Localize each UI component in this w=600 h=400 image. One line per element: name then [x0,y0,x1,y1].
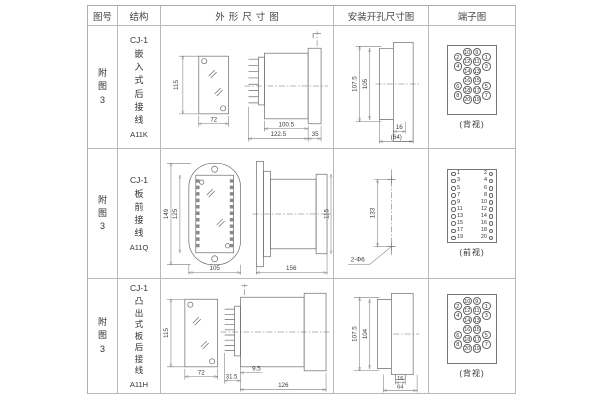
dim-v1: 107.5 [352,75,359,91]
pin-number-left: 15 [457,221,463,227]
terminal-pin: 15 [473,325,482,334]
install-svg-a11h: 107.5 104 16 64 [334,279,428,394]
pin-number-right: 12 [481,207,487,213]
terminal-box: 2468 101214161820 91113151719 1357 [447,294,497,364]
dim-front-width: 72 [210,116,217,123]
terminal-pin: 12 [463,57,472,66]
terminal-col-outer-right: 1357 [482,48,491,112]
hatch-marks [209,70,223,96]
terminal-row: 11 12 [451,207,493,213]
front-view: 115 72 [163,299,218,380]
side-view: 156 115 [252,161,332,274]
pin-number-right: 10 [481,200,487,206]
terminal-pin: 14 [463,316,472,325]
terminal-pin [451,221,456,226]
pin-number-left: 3 [457,178,460,184]
figure-no-a11k: 附图3 [88,26,118,149]
dim-v2: 105 [362,78,369,89]
pin-number-right: 18 [481,228,487,234]
terminal-diagram-a11q: 1 2 3 4 5 6 [429,149,516,279]
spec-sheet: 图号 结构 外形尺寸图 安装开孔尺寸图 端子图 附图3 CJ-1 嵌入式后接线 … [0,0,600,400]
terminal-pin: 10 [463,48,472,57]
dim-d1: 100.5 [278,121,294,128]
terminal-pin: 2 [454,53,463,62]
dim-h2: 64 [397,384,404,390]
terminal-row: 13 14 [451,214,493,220]
dim-v2: 104 [362,328,369,339]
view-caption: (前视) [459,247,484,258]
model-label: CJ-1 [130,175,148,185]
pin-number-left: 9 [457,200,460,206]
terminal-pin: 3 [482,311,491,320]
terminal-pin: 13 [473,67,482,76]
terminal-pin: 8 [454,340,463,349]
dim-h2: (64) [391,133,402,140]
install-svg-a11q: 133 2-Φ6 [334,149,428,279]
model-label: CJ-1 [130,283,148,293]
terminal-comb [248,59,258,103]
outline-svg-a11q: 149 125 105 156 [161,149,333,279]
terminal-pin [489,214,494,219]
figure-no-text: 附图3 [98,194,107,233]
cutout-left [378,299,392,368]
terminal-row: 9 10 [451,200,493,206]
hatch-marks [193,317,209,349]
terminal-pin [451,186,456,191]
terminal-pin [451,179,456,184]
terminal-box: 1 2 3 4 5 6 [447,169,497,243]
header-terminal-diagram: 端子图 [429,6,516,26]
terminal-col-inner-right: 91113151719 [473,297,482,361]
terminal-pin [489,193,494,198]
pin-number-left: 1 [457,171,460,177]
model-code-label: A11H [130,380,148,389]
structure-a11k: CJ-1 嵌入式后接线 A11K [118,26,161,149]
terminal-pin: 11 [473,306,482,315]
terminal-pin [451,172,456,177]
terminal-pin: 19 [473,344,482,353]
dimension-table: 图号 结构 外形尺寸图 安装开孔尺寸图 端子图 附图3 CJ-1 嵌入式后接线 … [87,5,516,394]
hatch-marks [207,189,225,227]
dim-front-inner: 125 [172,208,179,219]
pin-number-left: 11 [457,207,463,213]
terminal-pin [489,236,494,241]
pin-number-right: 4 [484,178,487,184]
header-outline-dims: 外形尺寸图 [161,6,334,26]
mount-type-label: 板前接线 [134,188,143,240]
terminal-diagram-a11k: 2468 101214161820 91113151719 1357 (背视) [429,26,516,149]
terminal-pin: 2 [454,302,463,311]
terminal-pin: 17 [473,335,482,344]
outline-drawing-a11h: 115 72 31.5 [161,279,334,394]
terminal-pin [489,229,494,234]
terminal-pin: 10 [463,297,472,306]
terminal-pin: 7 [482,340,491,349]
pin-number-left: 7 [457,193,460,199]
pin-number-right: 20 [481,235,487,241]
terminal-pin: 13 [473,316,482,325]
terminal-pin: 18 [463,86,472,95]
mount-type-label: 凸出式板后接线 [135,296,144,376]
terminal-pin: 6 [454,82,463,91]
terminal-row: 7 8 [451,193,493,199]
dim-d2: 9.5 [252,365,261,372]
model-label: CJ-1 [130,35,148,45]
terminal-pin [489,186,494,191]
terminal-comb [225,309,235,350]
dim-side-length: 156 [286,265,297,272]
header-figure-no: 图号 [88,6,118,26]
terminal-pin [451,214,456,219]
terminal-row: 1 2 [451,171,493,177]
terminal-pin: 4 [454,62,463,71]
terminal-col-inner-left: 101214161820 [463,48,472,112]
install-drawing-a11h: 107.5 104 16 64 [334,279,429,394]
terminal-pin: 11 [473,57,482,66]
terminal-pin: 20 [463,95,472,104]
terminal-pin: 19 [473,95,482,104]
dim-h1: 16 [397,376,403,382]
terminal-diagram-a11h: 2468 101214161820 91113151719 1357 (背视) [429,279,516,394]
install-drawing-a11q: 133 2-Φ6 [334,149,429,279]
figure-no-a11h: 附图3 [88,279,118,394]
dim-d1: 31.5 [226,374,238,380]
terminal-pin: 5 [482,331,491,340]
side-view: 100.5 122.5 35 [245,31,329,141]
header-install-dims: 安装开孔尺寸图 [334,6,429,26]
dim-v1: 107.5 [352,325,359,341]
view-caption: (背视) [459,368,484,379]
structure-a11h: CJ-1 凸出式板后接线 A11H [118,279,161,394]
pin-number-left: 17 [457,228,463,234]
terminal-pin [451,236,456,241]
terminal-pin: 1 [482,302,491,311]
terminal-row: 5 6 [451,186,493,192]
outline-svg-a11k: 115 72 [161,26,333,149]
terminal-pin [489,179,494,184]
install-drawing-a11k: 107.5 105 16 (64) [334,26,429,149]
front-view: 115 72 [173,56,229,127]
terminal-row: 19 20 [451,235,493,241]
terminal-col-outer-left: 2468 [454,297,463,361]
model-code-label: A11K [130,130,148,139]
terminal-pin: 9 [473,297,482,306]
terminal-pin: 3 [482,62,491,71]
figure-no-text: 附图3 [98,316,107,355]
outline-svg-a11h: 115 72 31.5 [161,279,333,394]
dim-front-width: 72 [198,369,205,376]
structure-a11q: CJ-1 板前接线 A11Q [118,149,161,279]
pin-number-left: 5 [457,186,460,192]
terminal-pin: 6 [454,331,463,340]
pin-number-right: 14 [481,214,487,220]
terminal-pin: 20 [463,344,472,353]
dim-front-height: 149 [163,208,170,219]
dim-front-height: 115 [163,327,170,337]
pin-number-right: 8 [484,193,487,199]
terminal-pin [451,193,456,198]
terminal-box: 2468 101214161820 91113151719 1357 [447,45,497,115]
terminal-pin: 14 [463,67,472,76]
view-caption: (背视) [459,119,484,130]
pin-number-right: 16 [481,221,487,227]
terminal-col-outer-left: 2468 [454,48,463,112]
dim-d3: 35 [312,131,319,138]
terminal-pin: 8 [454,91,463,100]
terminal-col-outer-right: 1357 [482,297,491,361]
model-code-label: A11Q [130,243,149,252]
terminal-pin: 16 [463,76,472,85]
outline-drawing-a11k: 115 72 [161,26,334,149]
terminal-col-inner-left: 101214161820 [463,297,472,361]
dim-d2: 122.5 [270,131,286,138]
side-view: 31.5 9.5 126 [221,283,330,391]
terminal-row: 15 16 [451,221,493,227]
terminal-pin [489,207,494,212]
dim-front-height: 115 [173,79,180,89]
header-structure: 结构 [118,6,161,26]
terminal-pin: 18 [463,335,472,344]
terminal-row: 3 4 [451,178,493,184]
dim-h1: 16 [396,124,403,131]
dim-front-width: 105 [209,265,220,272]
terminal-pin [489,200,494,205]
terminal-pin: 17 [473,86,482,95]
pin-number-left: 13 [457,214,463,220]
pin-number-left: 19 [457,235,463,241]
terminal-pin: 7 [482,91,491,100]
pin-number-right: 6 [484,186,487,192]
terminal-pin: 4 [454,311,463,320]
outline-drawing-a11q: 149 125 105 156 [161,149,334,279]
front-view: 149 125 105 [163,163,241,274]
terminal-pin [489,172,494,177]
terminal-pin: 15 [473,76,482,85]
pin-number-right: 2 [484,171,487,177]
terminal-pin: 5 [482,82,491,91]
terminal-pin [451,200,456,205]
terminal-pin: 12 [463,306,472,315]
mount-type-label: 嵌入式后接线 [134,48,143,126]
figure-no-text: 附图3 [98,67,107,106]
terminal-pin [451,207,456,212]
dim-d3: 126 [278,382,289,389]
terminal-pin [451,229,456,234]
terminal-row: 17 18 [451,228,493,234]
terminal-pin: 1 [482,53,491,62]
install-svg-a11k: 107.5 105 16 (64) [334,26,428,149]
terminal-pin: 9 [473,48,482,57]
hole-size-label: 2-Φ6 [351,256,365,263]
terminal-pin: 16 [463,325,472,334]
terminal-pin [489,221,494,226]
terminal-col-inner-right: 91113151719 [473,48,482,112]
dim-side-height: 115 [324,208,331,218]
figure-no-a11q: 附图3 [88,149,118,279]
dim-hole-spacing: 133 [370,207,377,218]
